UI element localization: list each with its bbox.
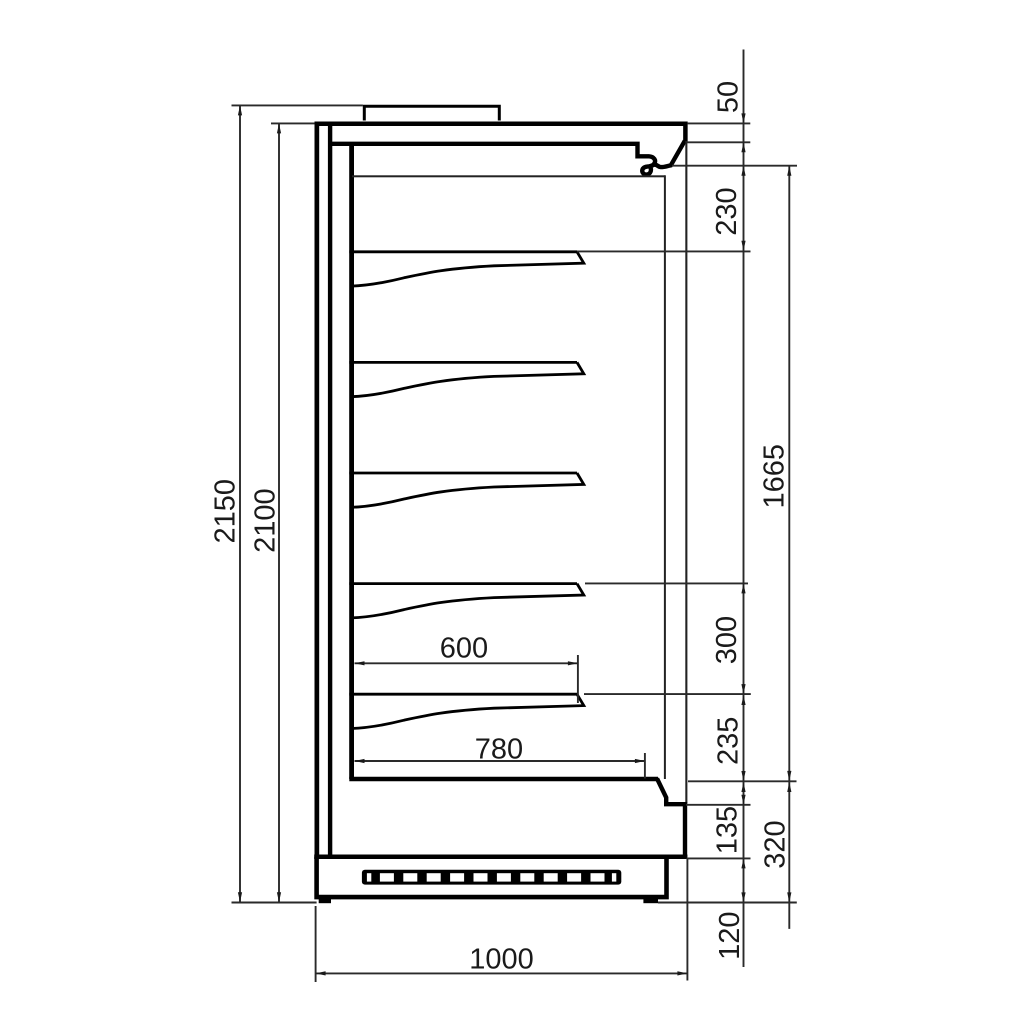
svg-text:235: 235: [713, 717, 745, 765]
svg-text:1000: 1000: [469, 943, 534, 975]
svg-text:230: 230: [711, 187, 743, 235]
svg-text:135: 135: [712, 806, 744, 854]
svg-text:120: 120: [714, 912, 746, 960]
svg-text:320: 320: [759, 820, 791, 868]
svg-text:1665: 1665: [758, 444, 790, 509]
svg-text:600: 600: [440, 633, 488, 665]
svg-text:2100: 2100: [249, 488, 281, 553]
svg-text:2150: 2150: [209, 479, 241, 544]
svg-text:50: 50: [713, 81, 745, 113]
svg-text:300: 300: [711, 616, 743, 664]
svg-text:780: 780: [475, 733, 523, 765]
